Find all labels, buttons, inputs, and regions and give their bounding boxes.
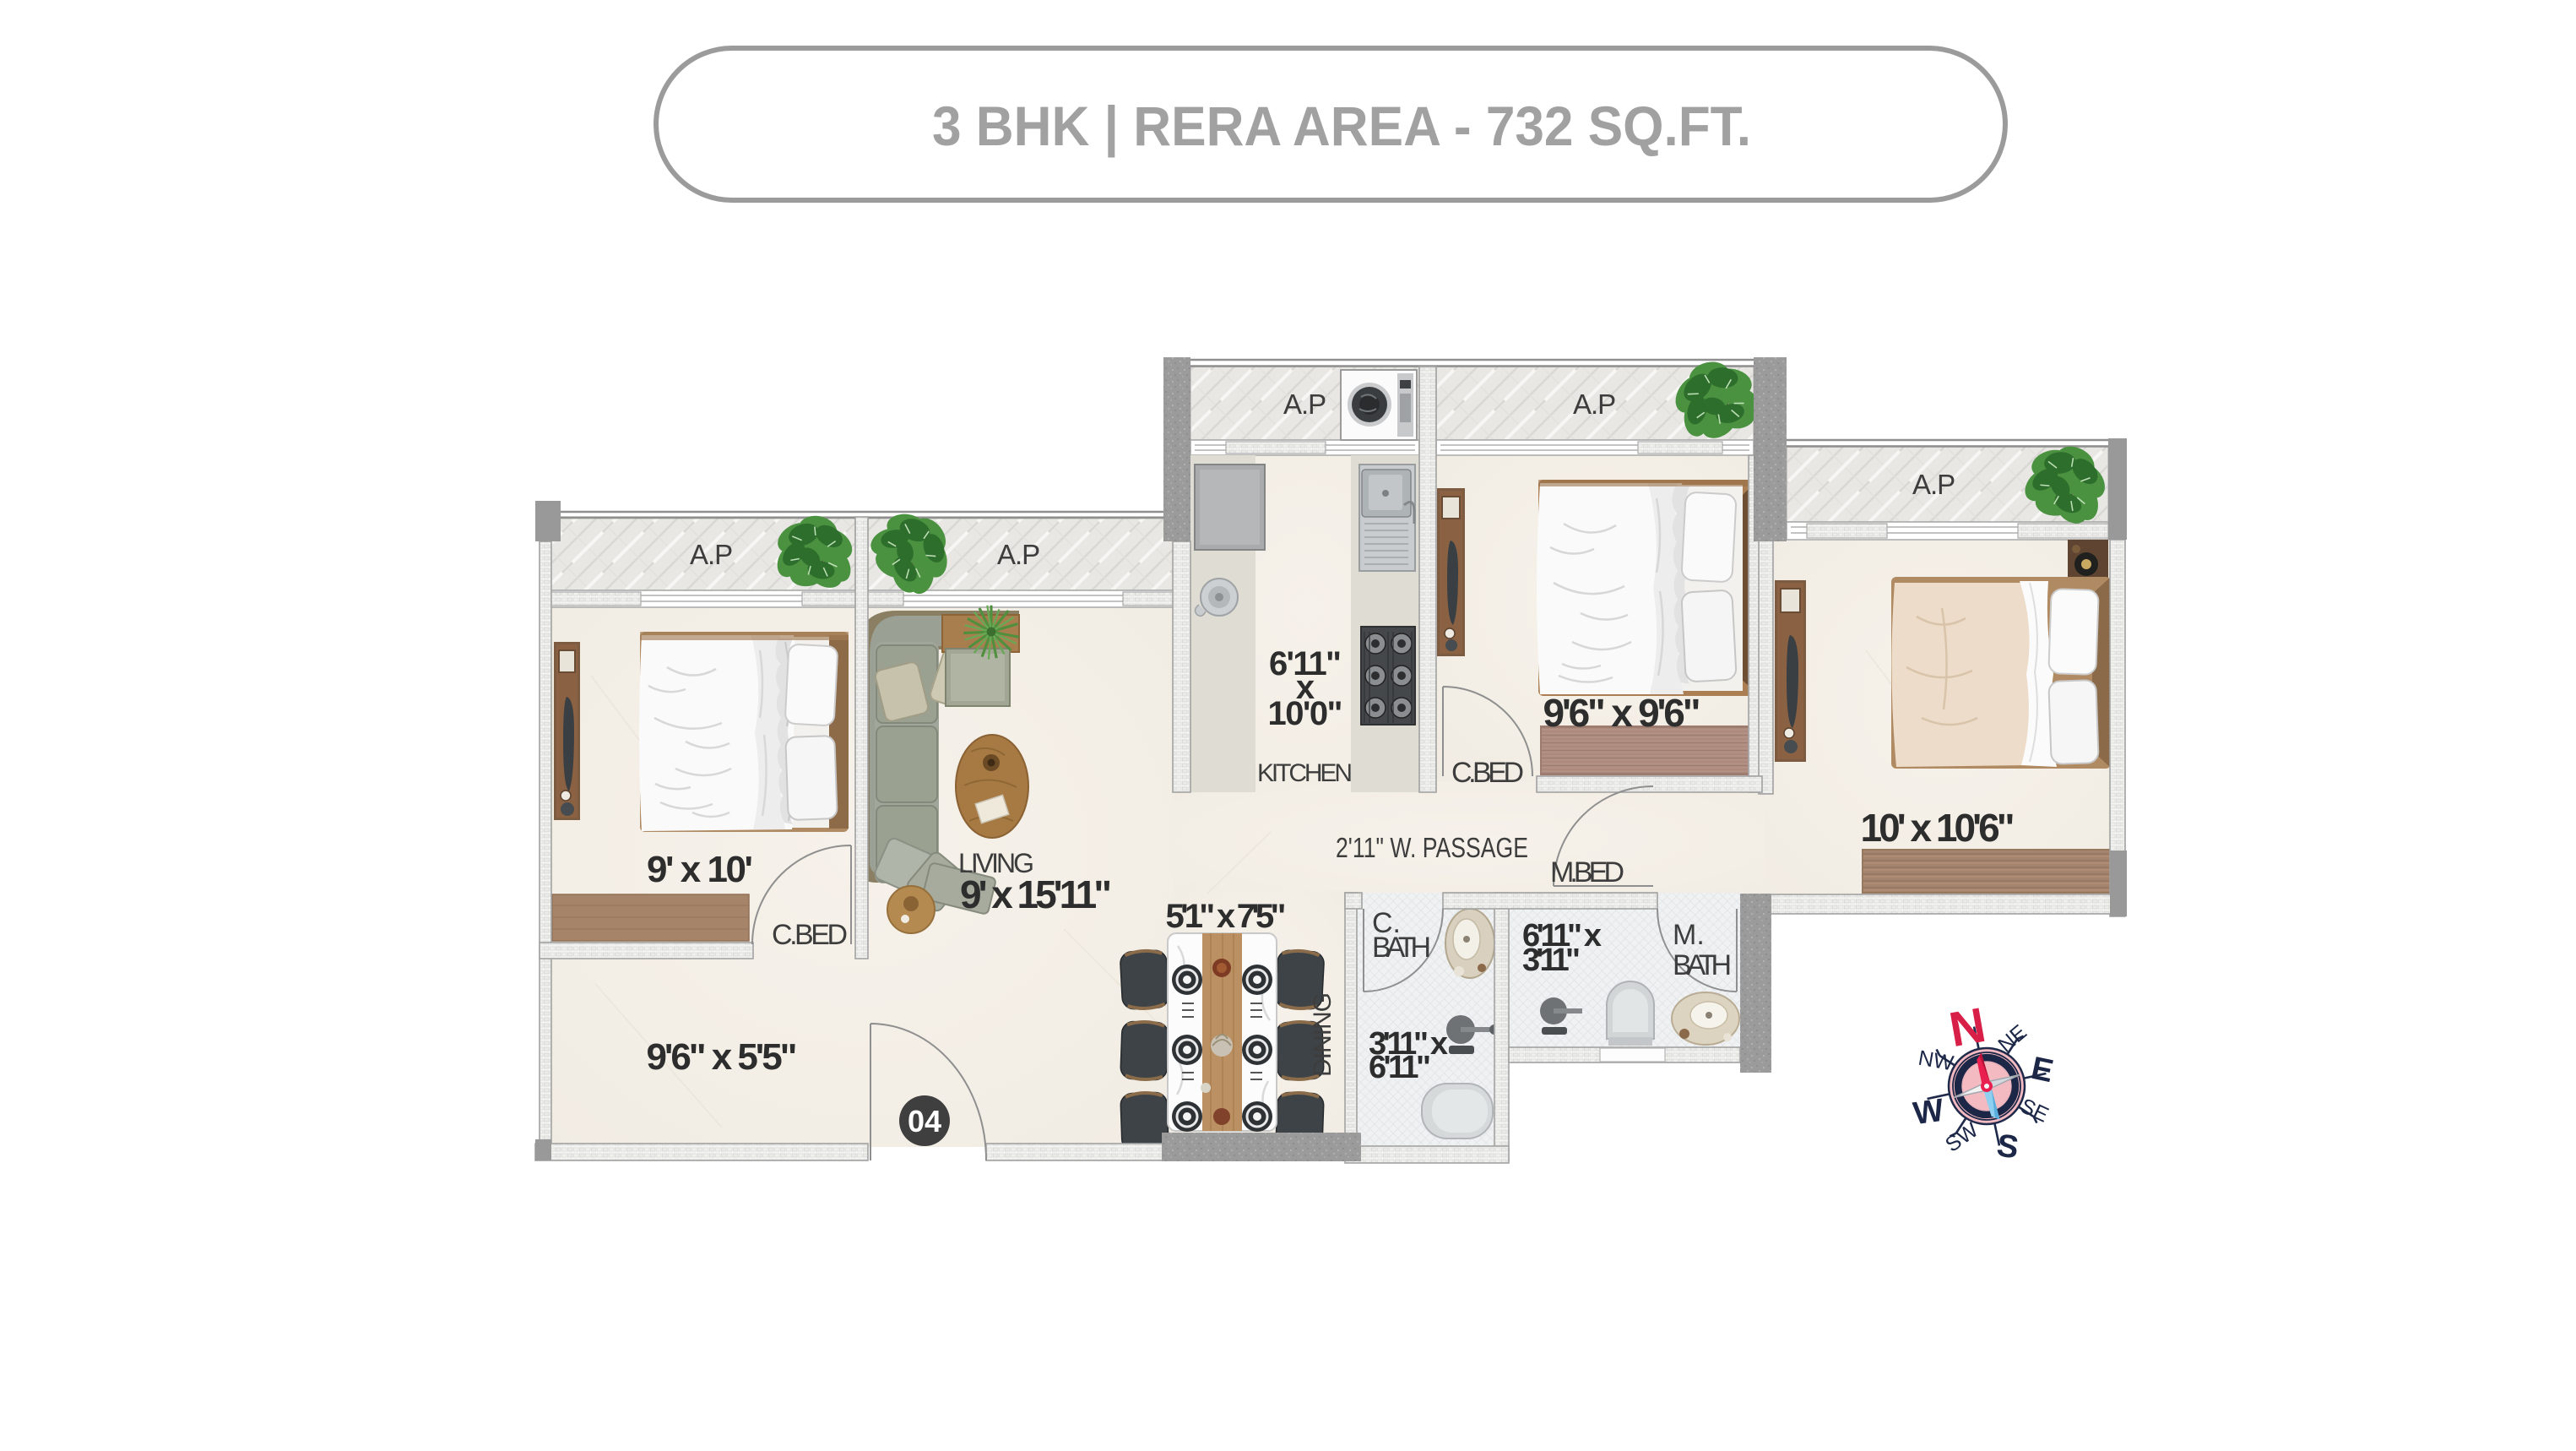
svg-text:A.P: A.P [997, 539, 1039, 570]
svg-text:C.BED: C.BED [1451, 757, 1524, 789]
svg-text:9'6" x 9'6": 9'6" x 9'6" [1543, 691, 1701, 735]
svg-text:9'6" x 5'5": 9'6" x 5'5" [647, 1036, 798, 1078]
svg-text:6'11": 6'11" [1369, 1050, 1431, 1085]
svg-text:A.P: A.P [1283, 389, 1326, 420]
svg-text:KITCHEN: KITCHEN [1257, 759, 1353, 787]
svg-text:A.P: A.P [1912, 469, 1955, 500]
svg-text:BATH: BATH [1673, 949, 1732, 981]
svg-text:5'1" x 7'5": 5'1" x 7'5" [1166, 898, 1287, 935]
svg-text:9' x 10': 9' x 10' [647, 849, 753, 890]
svg-text:2'11" W. PASSAGE: 2'11" W. PASSAGE [1336, 832, 1528, 863]
svg-text:C.BED: C.BED [772, 919, 848, 951]
svg-text:10' x 10'6": 10' x 10'6" [1861, 806, 2015, 850]
svg-text:3 BHK | RERA AREA - 732 SQ.FT.: 3 BHK | RERA AREA - 732 SQ.FT. [932, 95, 1751, 159]
svg-text:DINING: DINING [1309, 992, 1337, 1077]
svg-text:W: W [1911, 1093, 1945, 1133]
svg-text:3'11": 3'11" [1522, 943, 1581, 978]
svg-text:A.P: A.P [1573, 389, 1615, 420]
svg-text:M.BED: M.BED [1550, 856, 1624, 889]
svg-text:A.P: A.P [690, 539, 732, 570]
svg-text:M.: M. [1673, 919, 1705, 951]
svg-text:10'0": 10'0" [1268, 695, 1343, 732]
svg-text:BATH: BATH [1372, 932, 1431, 964]
svg-text:04: 04 [908, 1104, 941, 1139]
svg-text:9' x 15'11": 9' x 15'11" [960, 872, 1112, 916]
